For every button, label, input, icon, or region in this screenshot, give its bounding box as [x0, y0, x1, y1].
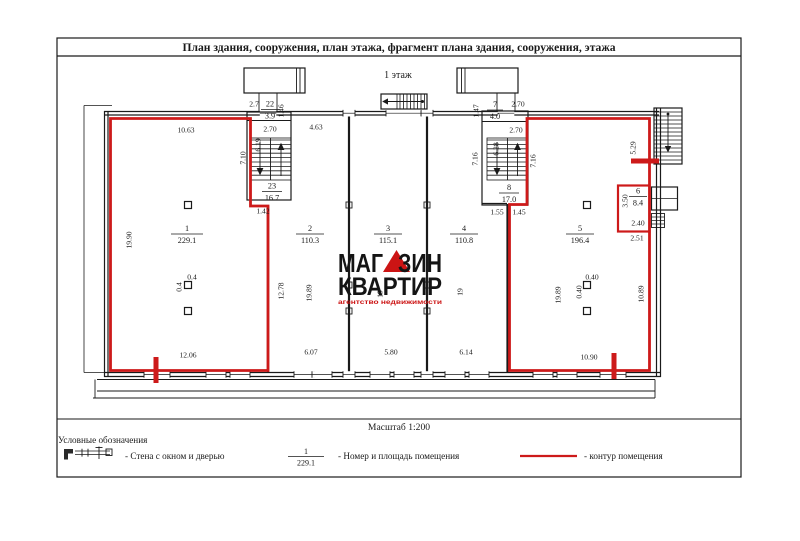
dim-label: 2.70 — [263, 125, 276, 134]
dim-label: 0.4 — [175, 282, 184, 292]
svg-text:7: 7 — [493, 100, 497, 109]
dim-label: 12.06 — [179, 351, 196, 360]
svg-text:8: 8 — [507, 183, 511, 192]
dim-label: 1.42 — [256, 207, 269, 216]
dim-label: 7.10 — [239, 151, 248, 164]
dim-label: 10.63 — [177, 126, 194, 135]
floor-label: 1 этаж — [384, 70, 412, 81]
svg-text:196.4: 196.4 — [571, 236, 589, 245]
dim-label: 6.19 — [254, 138, 263, 151]
dim-label: 10.90 — [580, 353, 597, 362]
dim-label: 1.47 — [472, 104, 481, 117]
svg-text:5: 5 — [578, 224, 582, 233]
dim-label: 0.4 — [187, 273, 197, 282]
dim-label: 7.16 — [471, 152, 480, 165]
dim-label: 1.46 — [277, 104, 286, 117]
logo-word2: КВАРТИР — [338, 273, 442, 301]
svg-text:6: 6 — [636, 187, 640, 196]
logo-tagline: агентство недвижимости — [338, 299, 442, 306]
svg-text:3.9: 3.9 — [265, 112, 275, 121]
svg-text:8.4: 8.4 — [633, 199, 643, 208]
dim-label: 2.70 — [511, 100, 524, 109]
dim-label: 0.40 — [575, 285, 584, 298]
dim-label: 19.89 — [554, 286, 563, 303]
floor-plan-svg: План здания, сооружения, план этажа, фра… — [0, 0, 800, 541]
dim-label: 1.45 — [512, 208, 525, 217]
svg-text:16.7: 16.7 — [265, 194, 279, 203]
svg-text:229.1: 229.1 — [178, 236, 196, 245]
dim-label: 19 — [456, 288, 465, 296]
dim-label: 10.89 — [637, 285, 646, 302]
legend-wall-item: - Стена с окном и дверью — [125, 451, 225, 461]
svg-text:22: 22 — [266, 100, 274, 109]
page-title: План здания, сооружения, план этажа, фра… — [182, 41, 615, 54]
dim-label: 1.55 — [490, 208, 503, 217]
dim-label: 12.78 — [277, 282, 286, 299]
dim-label: 19.89 — [305, 284, 314, 301]
svg-text:115.1: 115.1 — [379, 236, 397, 245]
svg-text:1: 1 — [185, 224, 189, 233]
svg-text:110.3: 110.3 — [301, 236, 319, 245]
dim-label: 2.51 — [630, 234, 643, 243]
dim-label: 2.7 — [249, 100, 259, 109]
dim-label: 3.50 — [621, 194, 630, 207]
dim-label: 0.40 — [585, 273, 598, 282]
legend-example-number: 1 — [304, 447, 308, 456]
scale-label: Масштаб 1:200 — [368, 422, 430, 433]
dim-label: 2.40 — [631, 219, 644, 228]
legend-example-area: 229.1 — [297, 459, 315, 468]
floor-plan-document: План здания, сооружения, план этажа, фра… — [0, 0, 800, 541]
svg-text:2: 2 — [308, 224, 312, 233]
legend-contour-item: - контур помещения — [584, 451, 663, 461]
svg-text:3: 3 — [386, 224, 390, 233]
dim-label: 19.90 — [125, 231, 134, 248]
dim-label: 5.29 — [629, 141, 638, 154]
door-tick-left — [154, 357, 159, 383]
dim-label: 5.80 — [384, 348, 397, 357]
svg-text:110.8: 110.8 — [455, 236, 473, 245]
door-tick-side — [631, 159, 659, 164]
door-tick-right — [612, 353, 617, 379]
dim-label: 6.14 — [459, 348, 472, 357]
svg-text:4: 4 — [462, 224, 466, 233]
right-external-stair — [654, 108, 682, 164]
legend-heading: Условные обозначения — [58, 435, 148, 445]
svg-text:17.0: 17.0 — [502, 195, 516, 204]
dim-label: 7.16 — [529, 154, 538, 167]
svg-text:4.0: 4.0 — [490, 112, 500, 121]
svg-text:23: 23 — [268, 182, 276, 191]
dim-label: 6.28 — [492, 142, 501, 155]
dim-label: 6.07 — [304, 348, 317, 357]
legend-number-item: - Номер и площадь помещения — [338, 451, 460, 461]
dim-label: 4.63 — [309, 123, 322, 132]
dim-label: 2.70 — [509, 126, 522, 135]
